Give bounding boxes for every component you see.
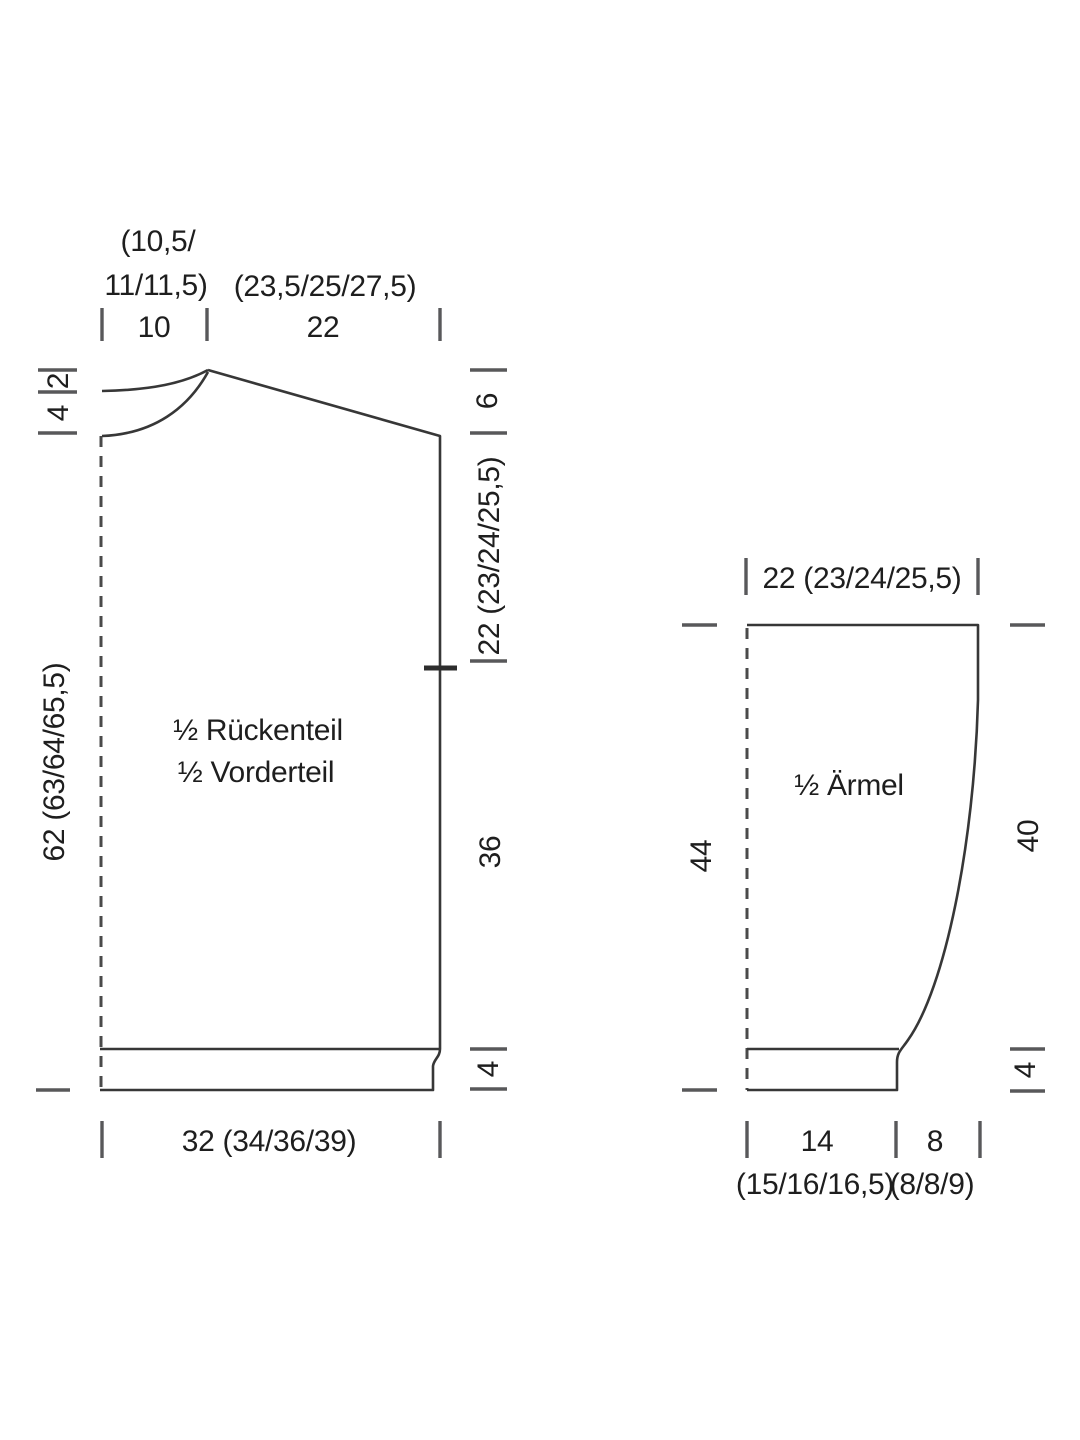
pattern-schematic: (10,5/ 11/11,5) (23,5/25/27,5) 10 22 2 4… [0,0,1080,1440]
sleeve-top-width: 22 (23/24/25,5) [763,562,962,595]
sleeve-taper-width: 8 [927,1125,943,1158]
body-back-neck-curve [102,370,208,391]
body-neck-sizes-line2: 11/11,5) [104,269,207,302]
body-front-neck-curve [102,372,208,436]
body-front-neck-depth: 4 [42,405,75,421]
body-lower-length: 36 [474,836,507,869]
sleeve-piece-label: ½ Ärmel [794,769,904,802]
body-shoulder-sizes: (23,5/25/27,5) [234,270,417,303]
body-shoulder-width: 22 [307,311,340,344]
body-piece-label-line2: ½ Vorderteil [178,756,335,789]
body-rib-height: 4 [472,1061,505,1077]
body-piece-label-line1: ½ Rückenteil [173,714,343,747]
sleeve-rib-height: 4 [1009,1062,1042,1078]
body-back-neck-depth: 2 [42,373,75,389]
body-neck-sizes-line1: (10,5/ [121,225,197,258]
body-armhole-depth: 22 (23/24/25,5) [473,457,506,656]
sleeve-outline [747,625,978,1090]
sleeve-piece: 22 (23/24/25,5) 44 40 4 ½ Ärmel 14 8 (15… [682,558,1045,1201]
body-total-length: 62 (63/64/65,5) [38,663,71,862]
sleeve-upper-length: 40 [1012,820,1045,853]
schematic-svg: (10,5/ 11/11,5) (23,5/25/27,5) 10 22 2 4… [0,0,1080,1440]
sleeve-total-length: 44 [685,840,718,873]
body-piece: (10,5/ 11/11,5) (23,5/25/27,5) 10 22 2 4… [36,225,507,1158]
sleeve-cuff-sizes: (15/16/16,5) [736,1168,894,1201]
body-neck-width: 10 [138,311,171,344]
body-bottom-width: 32 (34/36/39) [182,1125,357,1158]
sleeve-taper-sizes: (8/8/9) [890,1168,975,1201]
sleeve-cuff-width: 14 [801,1125,834,1158]
body-shoulder-drop: 6 [471,393,504,409]
